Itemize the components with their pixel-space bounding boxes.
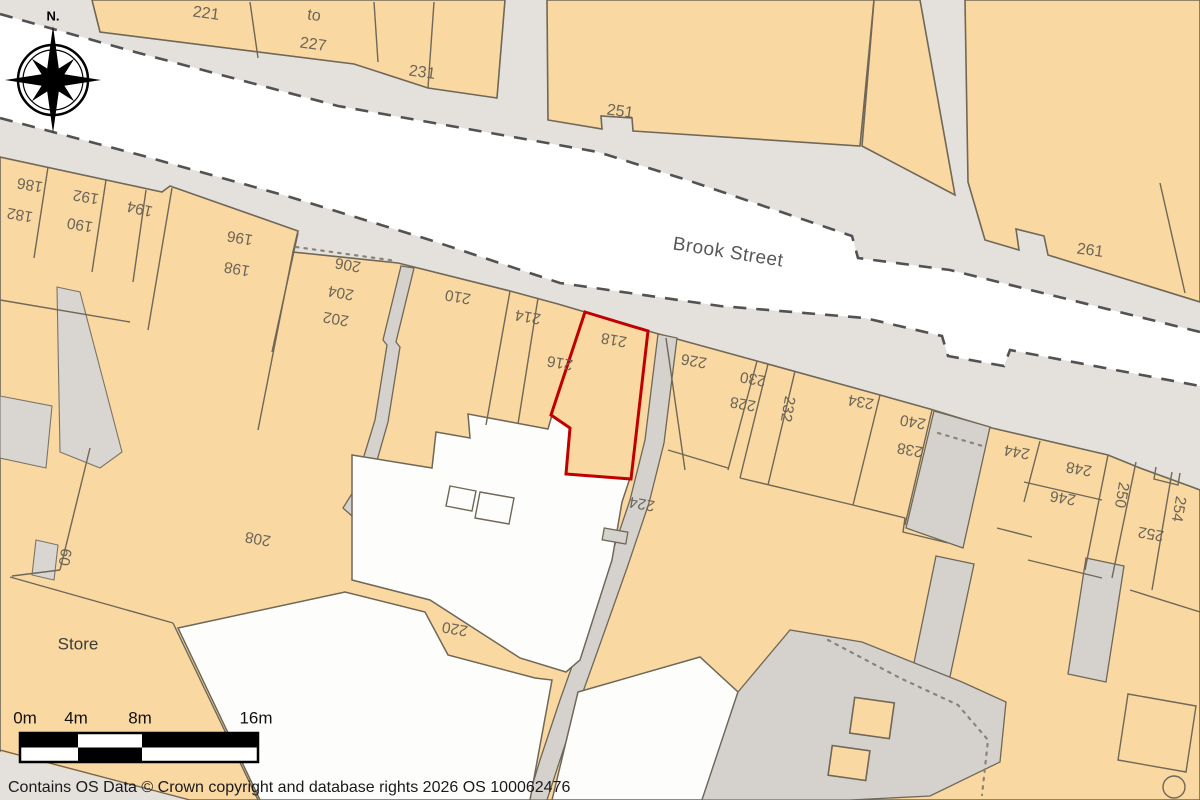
scale-bar-segment (78, 748, 142, 763)
scale-tick-16m: 16m (239, 708, 272, 727)
outbuilding (828, 746, 870, 781)
store-label: Store (58, 634, 99, 653)
scale-tick-8m: 8m (128, 708, 152, 727)
building-label-to: to (306, 6, 322, 25)
building-label-60: 60 (54, 547, 74, 567)
alley-path (0, 396, 52, 468)
outbuilding (850, 697, 895, 738)
compass-north-label: N. (47, 8, 60, 23)
scale-bar-segment (20, 733, 78, 748)
building-block (547, 0, 874, 146)
alley-path (32, 540, 58, 580)
scale-tick-4m: 4m (64, 708, 88, 727)
attribution-text: Contains OS Data © Crown copyright and d… (8, 779, 570, 796)
scale-bar-segment (142, 733, 258, 748)
map-viewport: N. Brook Street 221 to 227 231 251 261 1… (0, 0, 1200, 800)
scale-tick-0m: 0m (13, 708, 37, 727)
map-canvas: N. Brook Street 221 to 227 231 251 261 1… (0, 0, 1200, 800)
